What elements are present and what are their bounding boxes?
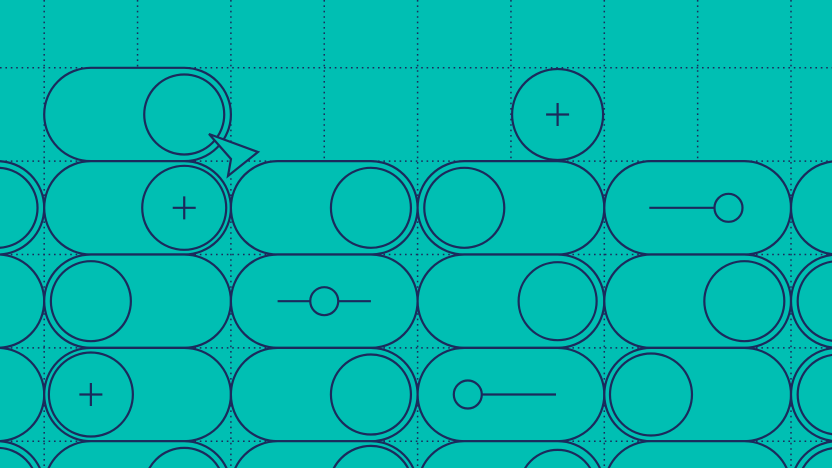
toggle-pill [418, 348, 605, 441]
toggle-knob [144, 74, 224, 154]
toggle-pill [604, 255, 791, 348]
slider-handle [310, 287, 338, 315]
toggle-pill [604, 161, 791, 254]
toggle-pill [44, 161, 231, 254]
slider-handle [715, 194, 743, 222]
toggle-knob [331, 168, 411, 248]
toggle-knob [331, 355, 411, 435]
toggle-pattern-illustration [0, 0, 832, 468]
toggle-pill [231, 348, 418, 441]
illustration-canvas [0, 0, 832, 468]
pill-body [604, 441, 791, 468]
toggle-pill [604, 348, 791, 441]
toggle-pill [231, 441, 418, 468]
toggle-knob [51, 261, 131, 341]
toggle-knob [704, 261, 784, 341]
toggle-pill [44, 441, 231, 468]
plus-circle-shape [512, 69, 603, 160]
toggle-knob [519, 262, 597, 340]
toggle-pill [418, 255, 605, 348]
toggle-pill [231, 255, 418, 348]
toggle-pill [418, 161, 605, 254]
toggle-pill [231, 161, 418, 254]
toggle-pill [604, 441, 791, 468]
toggle-knob [424, 168, 504, 248]
toggle-pill [44, 255, 231, 348]
toggle-knob [610, 354, 692, 436]
toggle-pill [418, 441, 605, 468]
toggle-pill [44, 68, 231, 161]
toggle-pill [44, 348, 231, 441]
slider-handle [454, 381, 482, 409]
